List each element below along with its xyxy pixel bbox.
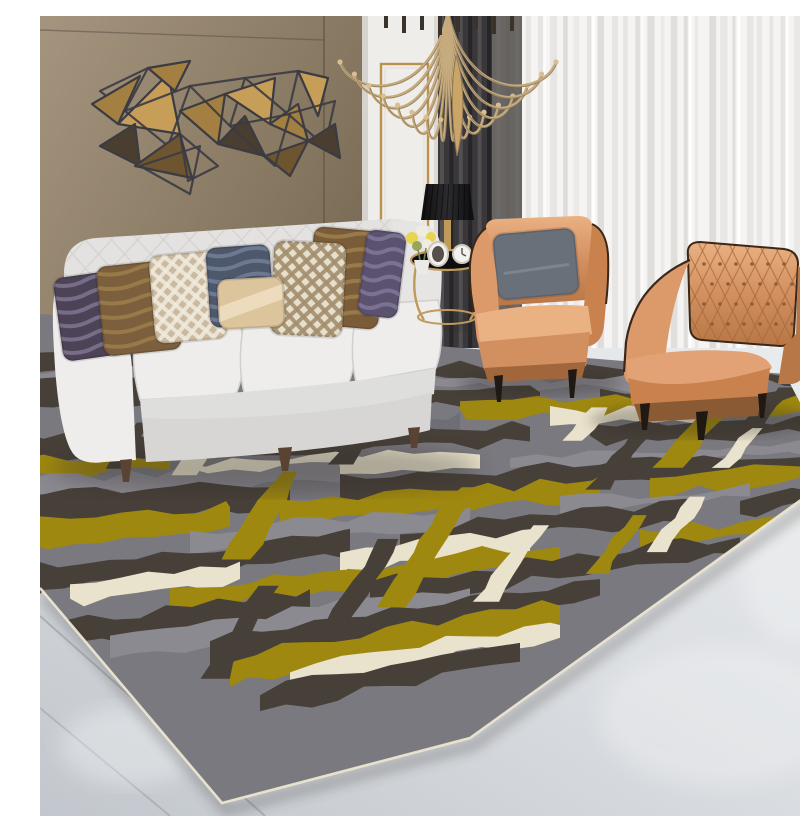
left-chair-gray-pillow (492, 228, 579, 301)
living-room-photo (40, 16, 800, 816)
pillow (492, 228, 579, 301)
scene-canvas (40, 16, 800, 816)
pillow (217, 276, 286, 329)
photo-frame-inner (432, 246, 444, 262)
pillow (357, 229, 407, 319)
